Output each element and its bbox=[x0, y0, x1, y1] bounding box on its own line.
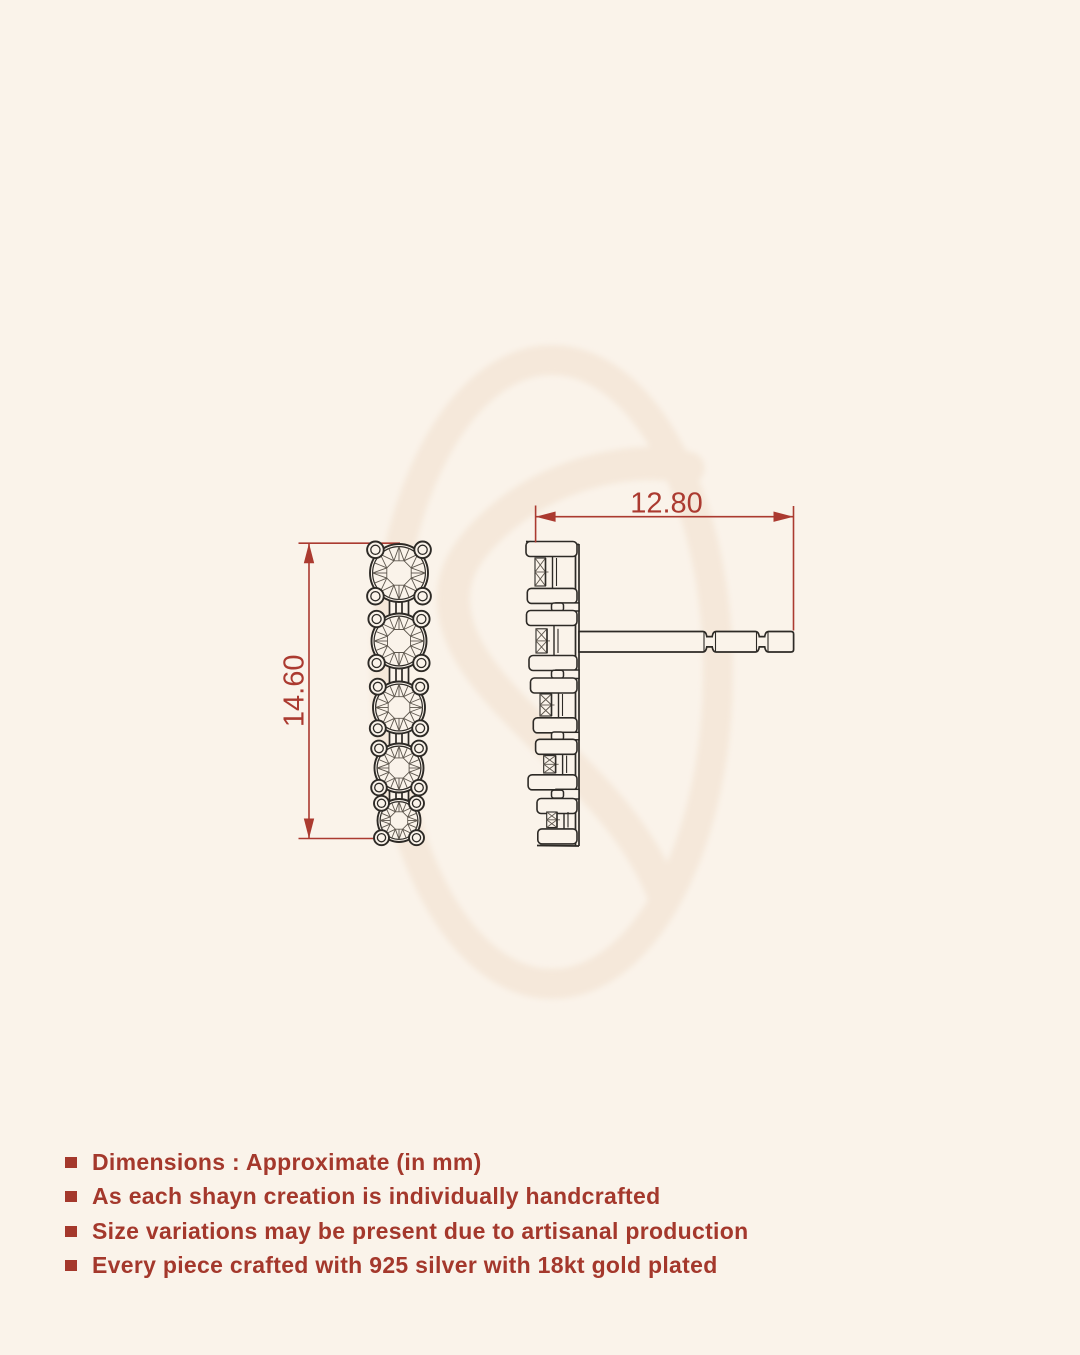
svg-text:14.60: 14.60 bbox=[279, 655, 311, 728]
svg-text:12.80: 12.80 bbox=[630, 488, 703, 520]
